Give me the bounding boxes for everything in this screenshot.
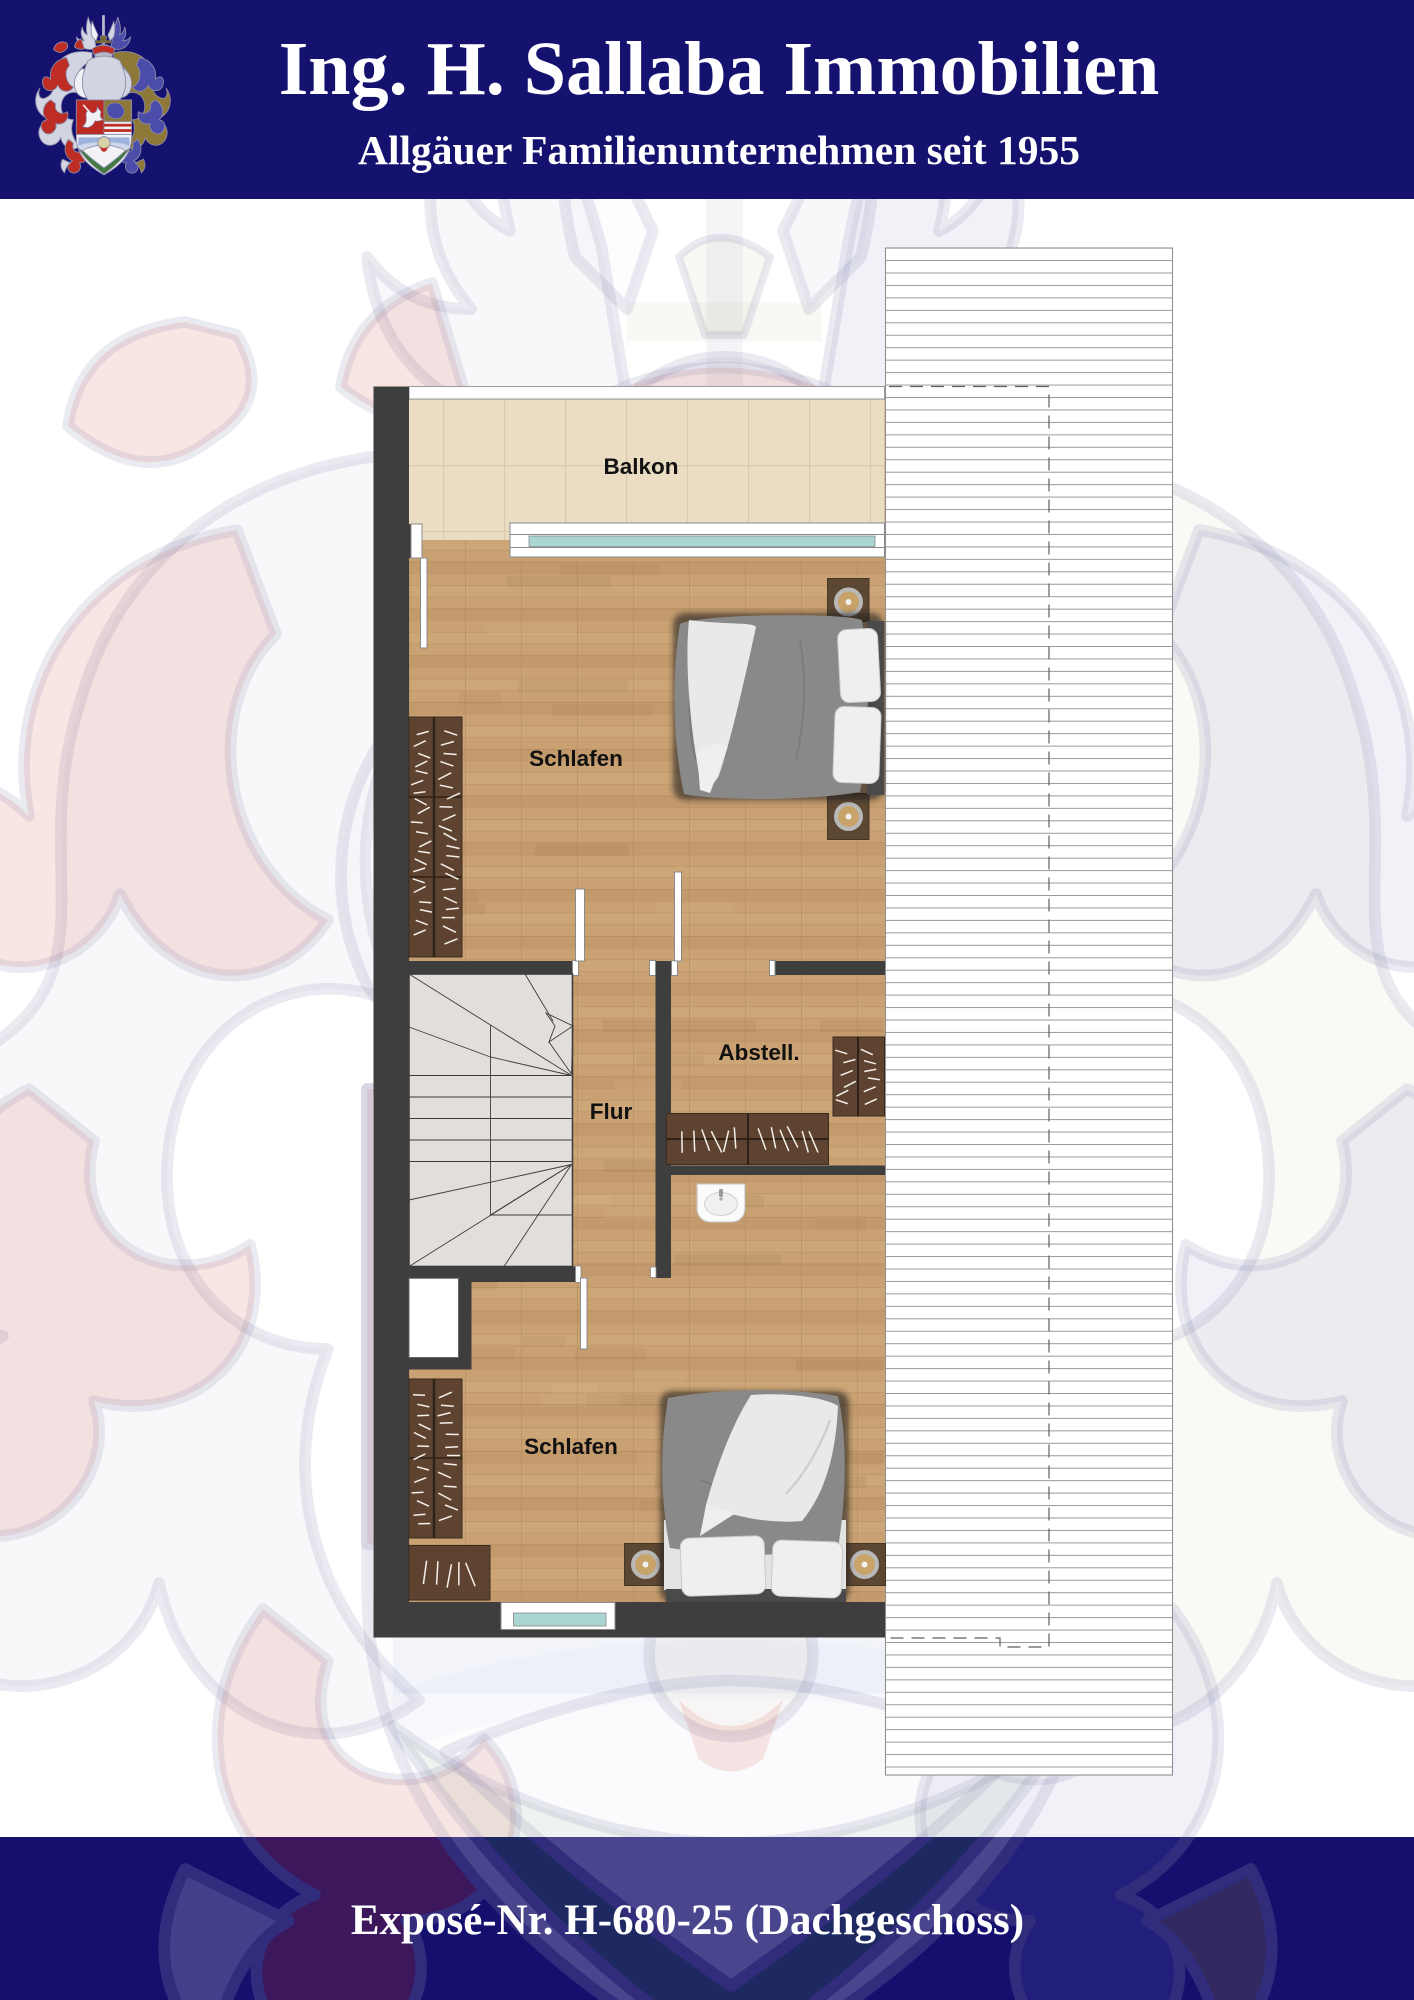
svg-text:Abstell.: Abstell. bbox=[718, 1040, 799, 1065]
svg-text:Balkon: Balkon bbox=[603, 454, 678, 479]
svg-text:Schlafen: Schlafen bbox=[524, 1434, 618, 1459]
svg-text:Schlafen: Schlafen bbox=[529, 746, 623, 771]
svg-text:Flur: Flur bbox=[590, 1099, 633, 1124]
